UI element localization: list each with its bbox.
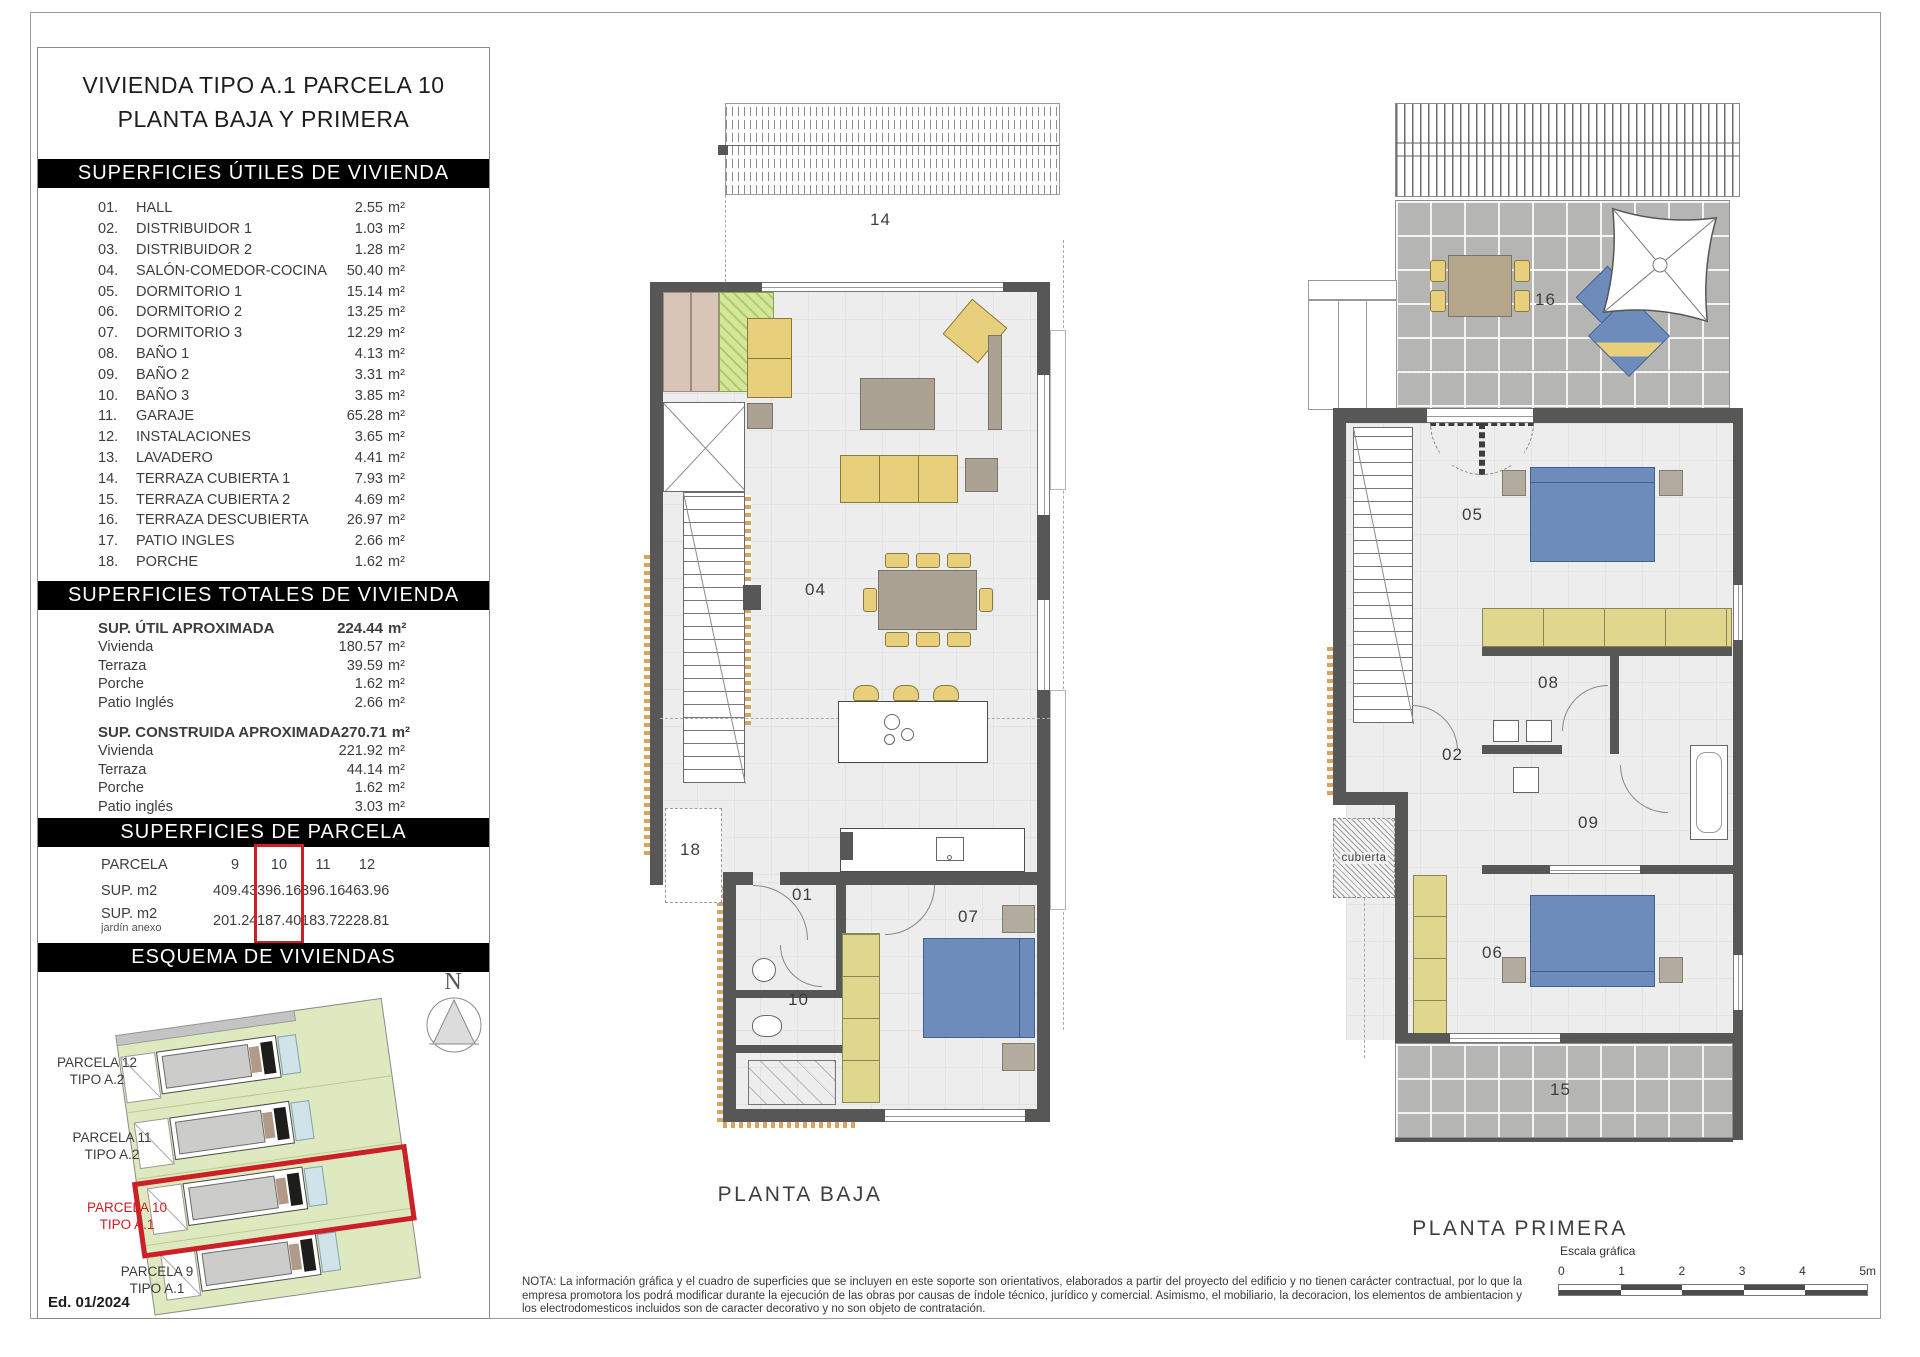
room-label: DISTRIBUIDOR 1: [128, 221, 333, 237]
room-area-value: 2.55: [333, 200, 383, 216]
wall-segment: [650, 282, 663, 885]
total-subrow-unit: m²: [383, 658, 409, 674]
room-number: 16.: [98, 512, 128, 528]
window: [1037, 600, 1050, 690]
wall-segment: [736, 1045, 846, 1053]
total-subrow: Vivienda 180.57 m²: [98, 638, 409, 657]
total-subrow-value: 221.92: [329, 743, 383, 759]
pergola-terraza-cubierta-1: [725, 103, 1060, 195]
wall-segment: [1333, 792, 1395, 805]
room-label: DORMITORIO 1: [128, 284, 333, 300]
bed: [1530, 895, 1655, 987]
total-subrow: Patio inglés 3.03 m²: [98, 798, 409, 817]
parcela-jardin-label: SUP. m2 jardín anexo: [73, 908, 213, 935]
dining-chair: [885, 553, 909, 568]
total-util-unit: m²: [383, 620, 409, 637]
roof-dashed-line: [1364, 898, 1365, 1058]
tv-unit: [988, 335, 1002, 430]
nightstand: [1502, 470, 1526, 496]
window: [1037, 375, 1050, 515]
room-area-value: 1.62: [333, 554, 383, 570]
room-number: 02.: [98, 221, 128, 237]
parcela-number: 12: [345, 857, 389, 873]
room-area-unit: m²: [383, 284, 409, 300]
info-panel: VIVIENDA TIPO A.1 PARCELA 10 PLANTA BAJA…: [37, 47, 490, 1319]
scale-label: Escala gráfica: [1560, 1244, 1635, 1258]
parasol: [1600, 205, 1720, 325]
parcela-sup-row: SUP. m2 409.43396.16396.16463.96: [73, 878, 403, 904]
parcela-sup-value: 396.16: [301, 883, 345, 899]
room-number: 01.: [98, 200, 128, 216]
wall-segment: [1733, 408, 1743, 1140]
room-area-value: 2.66: [333, 533, 383, 549]
outdoor-chair: [1430, 290, 1446, 312]
total-subrow: Terraza 39.59 m²: [98, 657, 409, 676]
total-subrow-label: Vivienda: [98, 743, 329, 759]
window: [762, 282, 1003, 292]
room-number: 06.: [98, 304, 128, 320]
room-label-bano-09: 09: [1578, 813, 1599, 833]
total-subrow-value: 3.03: [329, 799, 383, 815]
title-line-1: VIVIENDA TIPO A.1 PARCELA 10: [38, 68, 489, 102]
room-area-unit: m²: [383, 242, 409, 258]
planta-primera-plan: 16: [1300, 85, 1760, 1255]
dining-table: [878, 570, 977, 630]
total-subrow-label: Patio Inglés: [98, 695, 329, 711]
room-label: SALÓN-COMEDOR-COCINA: [128, 263, 333, 279]
total-subrow: Porche 1.62 m²: [98, 675, 409, 694]
total-subrow-label: Patio inglés: [98, 799, 329, 815]
room-surface-row: 17. PATIO INGLES 2.66 m²: [98, 531, 409, 552]
window: [1450, 1033, 1560, 1043]
room-surface-row: 10. BAÑO 3 3.85 m²: [98, 385, 409, 406]
room-area-unit: m²: [383, 408, 409, 424]
room-surface-row: 12. INSTALACIONES 3.65 m²: [98, 427, 409, 448]
dining-chair: [916, 632, 940, 647]
room-surface-row: 09. BAÑO 2 3.31 m²: [98, 364, 409, 385]
highlighted-parcela-10-box: [254, 844, 304, 944]
scale-tick: 4: [1799, 1264, 1806, 1278]
room-area-unit: m²: [383, 533, 409, 549]
parcela-header-row: PARCELA 9101112: [73, 852, 403, 878]
room-area-unit: m²: [383, 471, 409, 487]
dining-chair: [885, 632, 909, 647]
room-number: 13.: [98, 450, 128, 466]
room-area-value: 3.85: [333, 388, 383, 404]
parcela-sup-values: 409.43396.16396.16463.96: [213, 883, 403, 899]
page-title: VIVIENDA TIPO A.1 PARCELA 10 PLANTA BAJA…: [38, 68, 489, 136]
total-construida-row: SUP. CONSTRUIDA APROXIMADA 270.71 m²: [98, 722, 409, 742]
room-surface-row: 04. SALÓN-COMEDOR-COCINA 50.40 m²: [98, 260, 409, 281]
room-number: 03.: [98, 242, 128, 258]
roof-below-area: cubierta: [1333, 818, 1395, 898]
nightstand: [1659, 470, 1683, 496]
parcela-jardin-row: SUP. m2 jardín anexo 201.24187.40183.722…: [73, 904, 403, 938]
total-subrow-label: Terraza: [98, 762, 329, 778]
room-surface-row: 02. DISTRIBUIDOR 1 1.03 m²: [98, 219, 409, 240]
dining-chair: [916, 553, 940, 568]
total-subrow-unit: m²: [383, 743, 409, 759]
room-label-salon-04: 04: [805, 580, 826, 600]
total-subrow-unit: m²: [383, 695, 409, 711]
room-area-value: 3.65: [333, 429, 383, 445]
room-area-value: 4.13: [333, 346, 383, 362]
room-label: DORMITORIO 3: [128, 325, 333, 341]
title-line-2: PLANTA BAJA Y PRIMERA: [38, 102, 489, 136]
scale-tick: 0: [1558, 1264, 1565, 1278]
window: [1733, 585, 1743, 640]
coffee-table: [860, 378, 935, 430]
room-area-value: 26.97: [333, 512, 383, 528]
room-number: 14.: [98, 471, 128, 487]
total-subrow: Terraza 44.14 m²: [98, 761, 409, 780]
insulation-trim: [1327, 645, 1333, 795]
porch-canopy-strip: [663, 292, 691, 392]
room-area-value: 50.40: [333, 263, 383, 279]
insulation-trim: [644, 555, 650, 855]
total-subrow-unit: m²: [383, 639, 409, 655]
wall-segment: [723, 885, 736, 1122]
total-subrow-value: 180.57: [329, 639, 383, 655]
wall-segment: [1395, 1033, 1733, 1043]
room-label-bano-10: 10: [788, 990, 809, 1010]
room-area-value: 12.29: [333, 325, 383, 341]
outdoor-table: [1448, 255, 1512, 317]
bathroom-sink: [1513, 767, 1539, 793]
room-label: HALL: [128, 200, 333, 216]
total-construida-subrows: Vivienda 221.92 m² Terraza 44.14 m² Porc…: [98, 742, 409, 816]
room-surface-row: 15. TERRAZA CUBIERTA 2 4.69 m²: [98, 489, 409, 510]
wardrobe: [1482, 608, 1732, 647]
wall-segment: [780, 872, 1050, 885]
total-subrow: Patio Inglés 2.66 m²: [98, 694, 409, 713]
dining-chair: [979, 588, 993, 612]
total-subrow: Vivienda 221.92 m²: [98, 742, 409, 761]
room-area-unit: m²: [383, 450, 409, 466]
bed: [923, 938, 1035, 1038]
room-area-unit: m²: [383, 325, 409, 341]
total-subrow-label: Porche: [98, 676, 329, 692]
adjacent-building-outline: [1050, 330, 1066, 490]
room-label: LAVADERO: [128, 450, 333, 466]
wall-segment: [723, 872, 753, 885]
total-util-value: 224.44: [329, 620, 383, 637]
room-label: DORMITORIO 2: [128, 304, 333, 320]
room-area-value: 13.25: [333, 304, 383, 320]
kitchen-stool: [853, 685, 879, 701]
room-label-hall-01: 01: [792, 885, 813, 905]
room-label: TERRAZA CUBIERTA 1: [128, 471, 333, 487]
dining-chair: [947, 632, 971, 647]
room-number: 12.: [98, 429, 128, 445]
parcela-sup-label: SUP. m2: [73, 885, 213, 898]
room-label-terraza-16: 16: [1535, 290, 1556, 310]
room-area-unit: m²: [383, 367, 409, 383]
outdoor-chair: [1514, 260, 1530, 282]
side-table: [965, 458, 998, 492]
kitchen-stool: [893, 685, 919, 701]
bathroom-sink: [1526, 720, 1552, 742]
total-subrow-label: Terraza: [98, 658, 329, 674]
scale-bar: [1558, 1284, 1868, 1296]
room-label: DISTRIBUIDOR 2: [128, 242, 333, 258]
parcela-table: PARCELA 9101112 SUP. m2 409.43396.16396.…: [73, 852, 403, 938]
total-subrow-unit: m²: [383, 676, 409, 692]
wall-segment: [1395, 792, 1408, 1043]
parcela-jardin-label-sub: jardín anexo: [101, 922, 162, 934]
wall-segment: [1482, 647, 1732, 656]
parcela-jardin-values: 201.24187.40183.72228.81: [213, 913, 403, 929]
room-number: 10.: [98, 388, 128, 404]
parcela-10-label: PARCELA 10 TIPO A.1: [71, 1199, 183, 1233]
kitchen-island: [838, 701, 988, 763]
section-header-superficies-utiles: SUPERFICIES ÚTILES DE VIVIENDA: [38, 159, 489, 188]
dining-chair: [947, 553, 971, 568]
dining-chair: [863, 588, 877, 612]
plan-sheet: VIVIENDA TIPO A.1 PARCELA 10 PLANTA BAJA…: [0, 0, 1920, 1357]
wardrobe: [842, 933, 880, 1103]
room-surface-row: 18. PORCHE 1.62 m²: [98, 552, 409, 573]
parcela-sup-value: 409.43: [213, 883, 257, 899]
pergola-post: [718, 145, 728, 155]
railing: [1308, 280, 1397, 300]
room-surface-row: 16. TERRAZA DESCUBIERTA 26.97 m²: [98, 510, 409, 531]
scale-tick: 1: [1618, 1264, 1625, 1278]
room-area-unit: m²: [383, 221, 409, 237]
room-number: 09.: [98, 367, 128, 383]
room-label-dormitorio-07: 07: [958, 907, 979, 927]
bed: [1530, 467, 1655, 562]
room-label: PORCHE: [128, 554, 333, 570]
outdoor-chair: [1514, 290, 1530, 312]
total-construida-label: SUP. CONSTRUIDA APROXIMADA: [98, 724, 341, 741]
parcela-12-label: PARCELA 12 TIPO A.2: [41, 1054, 153, 1088]
room-label-terraza-15: 15: [1550, 1080, 1571, 1100]
total-subrow-label: Vivienda: [98, 639, 329, 655]
room-surface-row: 05. DORMITORIO 1 15.14 m²: [98, 281, 409, 302]
wall-segment: [1610, 656, 1619, 754]
graphic-scale: Escala gráfica 012345m: [1558, 1244, 1876, 1304]
room-area-unit: m²: [383, 304, 409, 320]
stair-void: [663, 402, 745, 492]
nightstand: [1002, 905, 1035, 933]
room-surface-row: 14. TERRAZA CUBIERTA 1 7.93 m²: [98, 468, 409, 489]
wall-stub: [743, 585, 761, 610]
counter-end-wall: [840, 832, 853, 860]
side-table: [747, 403, 773, 429]
parcela-number: 11: [301, 857, 345, 873]
room-label: TERRAZA DESCUBIERTA: [128, 512, 333, 528]
sofa: [747, 318, 792, 398]
room-area-value: 15.14: [333, 284, 383, 300]
terrace-dashed-line: [1395, 370, 1730, 371]
room-area-value: 3.31: [333, 367, 383, 383]
parcela-numbers: 9101112: [213, 857, 403, 873]
total-subrow-value: 1.62: [329, 780, 383, 796]
parcela-jardin-label-main: SUP. m2: [101, 906, 157, 922]
room-number: 11.: [98, 408, 128, 424]
room-number: 05.: [98, 284, 128, 300]
wall-segment: [1395, 1138, 1733, 1142]
parcela-sup-value: 463.96: [345, 883, 389, 899]
room-area-value: 65.28: [333, 408, 383, 424]
total-construida-unit: m²: [387, 724, 410, 741]
insulation-trim: [745, 495, 751, 725]
room-surface-row: 01. HALL 2.55 m²: [98, 198, 409, 219]
kitchen-stool: [933, 685, 959, 701]
total-subrow-label: Porche: [98, 780, 329, 796]
room-area-value: 7.93: [333, 471, 383, 487]
total-subrow-unit: m²: [383, 762, 409, 778]
room-surface-list: 01. HALL 2.55 m² 02. DISTRIBUIDOR 1 1.03…: [38, 198, 489, 572]
room-surface-row: 07. DORMITORIO 3 12.29 m²: [98, 323, 409, 344]
room-area-unit: m²: [383, 554, 409, 570]
room-label: PATIO INGLES: [128, 533, 333, 549]
legal-note: NOTA: La información gráfica y el cuadro…: [522, 1276, 1522, 1317]
room-number: 07.: [98, 325, 128, 341]
pergola-slats: [1395, 103, 1740, 197]
wall-segment: [1333, 408, 1346, 805]
parcela-row-header: PARCELA: [73, 859, 213, 872]
parcela-jardin-value: 183.72: [301, 913, 345, 929]
sofa: [840, 455, 958, 503]
shower: [748, 1060, 836, 1105]
window: [1427, 408, 1533, 423]
total-subrow-value: 39.59: [329, 658, 383, 674]
stairs: [1353, 427, 1413, 723]
room-number: 08.: [98, 346, 128, 362]
nightstand: [1659, 957, 1683, 983]
total-util-row: SUP. ÚTIL APROXIMADA 224.44 m²: [98, 618, 409, 638]
room-number: 04.: [98, 263, 128, 279]
room-label: GARAJE: [128, 408, 333, 424]
total-util-subrows: Vivienda 180.57 m² Terraza 39.59 m² Porc…: [98, 638, 409, 712]
kitchen-counter: [840, 828, 1025, 872]
bathroom-sink: [752, 958, 776, 982]
total-subrow-value: 2.66: [329, 695, 383, 711]
nightstand: [1002, 1043, 1035, 1071]
terrace-projection-line: [725, 195, 726, 282]
room-area-unit: m²: [383, 492, 409, 508]
total-construida-value: 270.71: [341, 724, 387, 741]
room-area-unit: m²: [383, 263, 409, 279]
railing: [1308, 300, 1397, 410]
room-label-bano-08: 08: [1538, 673, 1559, 693]
insulation-trim: [717, 885, 723, 1122]
window: [1733, 955, 1743, 1010]
room-label-dormitorio-05: 05: [1462, 505, 1483, 525]
total-subrow-value: 44.14: [329, 762, 383, 778]
room-number: 15.: [98, 492, 128, 508]
section-header-esquema: ESQUEMA DE VIVIENDAS: [38, 943, 489, 972]
total-subrow-value: 1.62: [329, 676, 383, 692]
room-area-value: 1.28: [333, 242, 383, 258]
bathtub: [1690, 745, 1728, 840]
room-area-unit: m²: [383, 512, 409, 528]
room-label: BAÑO 2: [128, 367, 333, 383]
stairs: [683, 492, 745, 783]
nightstand: [1502, 957, 1526, 983]
room-label-dormitorio-06: 06: [1482, 943, 1503, 963]
total-subrow-unit: m²: [383, 780, 409, 796]
window: [1550, 865, 1640, 874]
room-label: BAÑO 3: [128, 388, 333, 404]
room-surface-row: 06. DORMITORIO 2 13.25 m²: [98, 302, 409, 323]
wall-segment: [650, 282, 762, 292]
room-surface-row: 03. DISTRIBUIDOR 2 1.28 m²: [98, 240, 409, 261]
room-label: TERRAZA CUBIERTA 2: [128, 492, 333, 508]
insulation-trim: [723, 1122, 858, 1128]
scale-tick: 3: [1739, 1264, 1746, 1278]
parcela-11-label: PARCELA 11 TIPO A.2: [56, 1129, 168, 1163]
planta-baja-plan: 14: [540, 85, 1060, 1235]
room-area-value: 4.69: [333, 492, 383, 508]
total-util-label: SUP. ÚTIL APROXIMADA: [98, 620, 329, 637]
room-area-unit: m²: [383, 388, 409, 404]
wall-segment: [1333, 408, 1427, 423]
outdoor-chair: [1430, 260, 1446, 282]
section-header-superficies-parcela: SUPERFICIES DE PARCELA: [38, 818, 489, 847]
room-label-porche-18: 18: [680, 840, 701, 860]
window: [885, 1109, 1025, 1122]
room-number: 17.: [98, 533, 128, 549]
total-subrow: Porche 1.62 m²: [98, 779, 409, 798]
wardrobe: [1413, 875, 1447, 1043]
parcela-number: 9: [213, 857, 257, 873]
parcela-jardin-value: 228.81: [345, 913, 389, 929]
parcela-jardin-value: 201.24: [213, 913, 257, 929]
bathroom-sink: [1493, 720, 1519, 742]
room-label: BAÑO 1: [128, 346, 333, 362]
total-subrow-unit: m²: [383, 799, 409, 815]
wall-segment: [1482, 745, 1562, 754]
room-area-unit: m²: [383, 346, 409, 362]
room-area-value: 1.03: [333, 221, 383, 237]
scale-tick: 2: [1679, 1264, 1686, 1278]
scale-ticks: 012345m: [1558, 1264, 1876, 1278]
adjacent-building-outline: [1050, 690, 1066, 910]
room-surface-row: 11. GARAJE 65.28 m²: [98, 406, 409, 427]
cubierta-label: cubierta: [1340, 852, 1389, 864]
room-area-unit: m²: [383, 200, 409, 216]
room-area-value: 4.41: [333, 450, 383, 466]
room-surface-row: 08. BAÑO 1 4.13 m²: [98, 344, 409, 365]
totals-block: SUP. ÚTIL APROXIMADA 224.44 m² Vivienda …: [38, 618, 489, 816]
room-number: 18.: [98, 554, 128, 570]
parcela-9-label: PARCELA 9 TIPO A.1: [101, 1263, 213, 1297]
porch-canopy-strip: [691, 292, 719, 392]
planta-primera-caption: PLANTA PRIMERA: [1320, 1217, 1720, 1241]
wall-segment: [1533, 408, 1733, 423]
toilet: [752, 1015, 782, 1037]
planta-baja-caption: PLANTA BAJA: [600, 1183, 1000, 1207]
scale-tick: 5m: [1859, 1264, 1876, 1278]
room-label: INSTALACIONES: [128, 429, 333, 445]
room-area-unit: m²: [383, 429, 409, 445]
room-surface-row: 13. LAVADERO 4.41 m²: [98, 448, 409, 469]
room-label-terraza-14: 14: [870, 210, 891, 230]
section-header-superficies-totales: SUPERFICIES TOTALES DE VIVIENDA: [38, 581, 489, 610]
edition-label: Ed. 01/2024: [48, 1294, 130, 1311]
